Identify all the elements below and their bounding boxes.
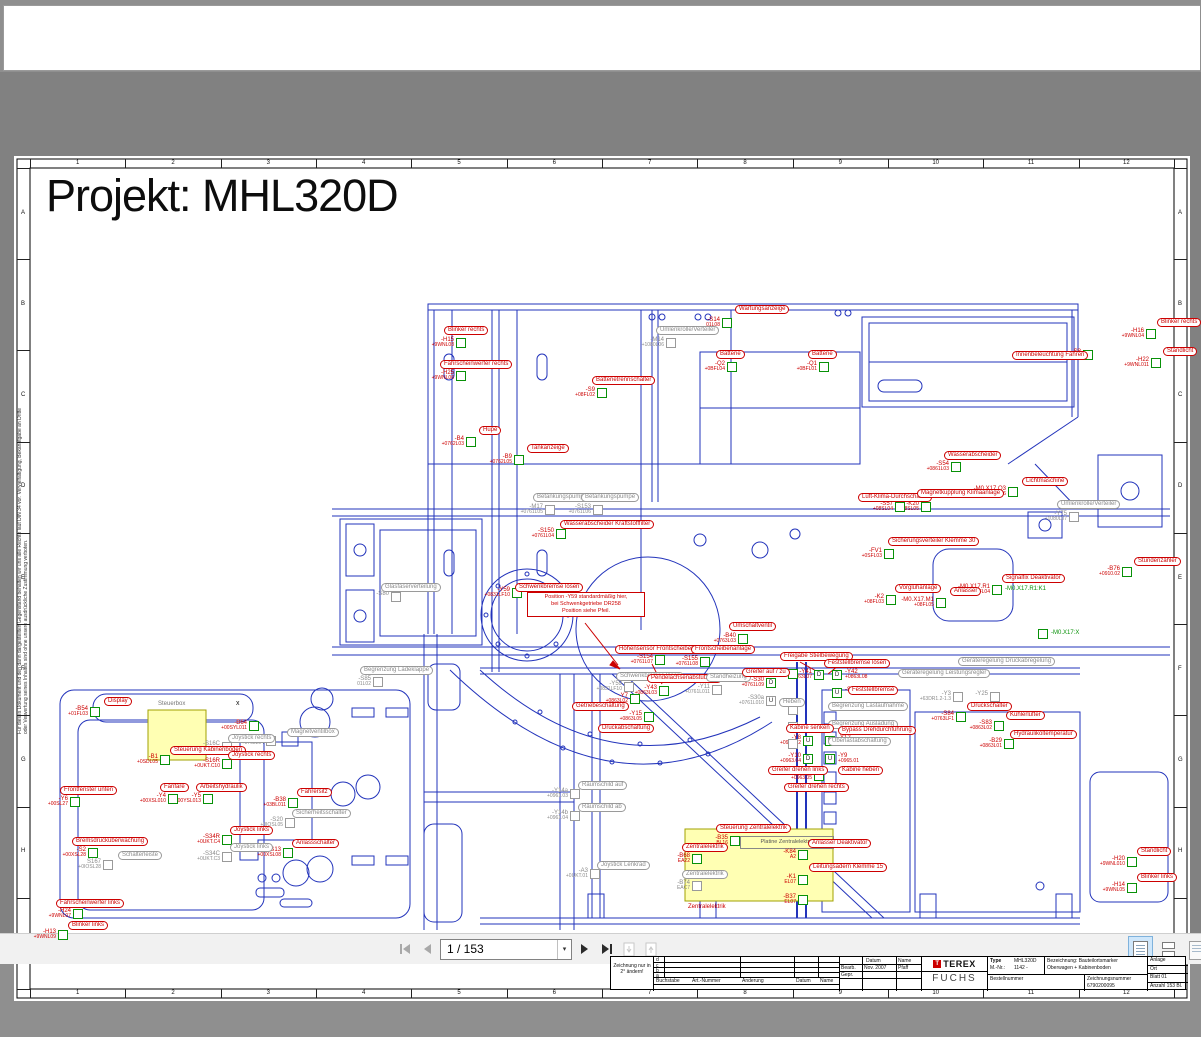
component-marker-square [1127, 883, 1137, 893]
component-label: Räumschild ab [578, 803, 626, 812]
component-tag: -H14+9WNL05 [1067, 882, 1125, 893]
component-label: Arbeitshydraulik [196, 783, 247, 792]
frame-col-label: 8 [743, 160, 746, 166]
revision-table: d c b a Buchstabe Art.-Nummer Änderung D… [653, 957, 839, 991]
frame-col-label: 2 [171, 160, 174, 166]
component-label: Wasserabscheider [944, 451, 1001, 460]
component-label: Betankungspumpe [581, 493, 639, 502]
component-marker-square [1004, 739, 1014, 749]
component-tag: -S150+0761L04 [496, 528, 554, 539]
frame-col-label: 1 [76, 160, 79, 166]
signature-table: Datum Name Bearb. Nov. 2007 Pfaff Gepr. [839, 957, 921, 991]
frame-row-label: E [1178, 575, 1182, 581]
component-marker-square [168, 794, 178, 804]
component-marker-square [58, 930, 68, 940]
component-tag: -M14+1080L06 [606, 337, 664, 348]
component-marker-square: D [832, 670, 842, 680]
component-label: Begrenzung Lastaufnahme [828, 702, 908, 711]
component-marker-square [798, 850, 808, 860]
component-marker-square [727, 362, 737, 372]
component-tag: -B54+01FL03 [30, 706, 88, 717]
component-marker-square [70, 797, 80, 807]
component-label: Schalterleiste [118, 851, 162, 860]
frame-row-label: C [21, 392, 25, 398]
component-label: Sicherungsverteiler Klemme 30 [888, 537, 979, 546]
component-label: Umschaltventil [729, 622, 776, 631]
component-tag: -B64+00SYL011 [189, 720, 247, 731]
component-label: Fahrscheinwerfer rechts [440, 360, 512, 369]
component-marker-square [994, 721, 1004, 731]
combo-caret-icon[interactable]: ▾ [557, 940, 571, 959]
frame-row-label: D [21, 483, 25, 489]
component-marker-square [203, 794, 213, 804]
component-marker-square [895, 502, 905, 512]
frame-tick [1174, 898, 1187, 899]
frame-row-label: G [1178, 757, 1183, 763]
component-marker-square [373, 677, 383, 687]
component-label: Hupe [479, 426, 501, 435]
component-marker-square [391, 592, 401, 602]
component-label: Feststellbremse lösen [824, 659, 890, 668]
title-block: Zeichnung nur in 2° ändern! d c b a Buch… [610, 956, 1186, 990]
component-tag: -Y10+0963.04 [743, 753, 801, 764]
component-tag: -K1EL07 [738, 874, 796, 885]
component-label: Wartungsanzeige [735, 305, 789, 314]
frame-tick [17, 898, 30, 899]
copyright-side-note: Für dieses Dokument und den darin darges… [17, 402, 29, 734]
component-label: Wasserabscheider Kraftstofffilter [560, 520, 654, 529]
component-marker-square [738, 634, 748, 644]
component-tag: -Y59+0831LF10 [452, 587, 510, 598]
component-label: Umlenkrolle/Verteiler [656, 326, 719, 335]
component-tag: -FV1+0SFL03 [824, 548, 882, 559]
component-marker-square: D [814, 670, 824, 680]
component-tag: -S8501L02 [313, 676, 371, 687]
component-label: Magnetventilbox [287, 728, 339, 737]
component-tag: -Y42+0863L08 [845, 669, 903, 680]
frame-tick [17, 168, 30, 169]
component-label: Glasfaserverteilung [381, 583, 441, 592]
component-marker-square [1008, 487, 1018, 497]
component-marker-square [1038, 629, 1048, 639]
component-tag: -S30a+0761L010 [706, 695, 764, 706]
component-label: Druckschalter [967, 702, 1012, 711]
component-marker-square [593, 505, 603, 515]
component-marker-square [659, 686, 669, 696]
component-marker-square [285, 818, 295, 828]
frame-col-label: 7 [648, 160, 651, 166]
component-label: Kabine heben [838, 766, 883, 775]
position-note-box: Position -Y59 standardmäßig hier, bei Sc… [527, 592, 645, 617]
component-marker-square [466, 437, 476, 447]
frame-tick [602, 159, 603, 168]
component-label: Geräteregelung Leistungsregler [898, 669, 990, 678]
component-marker-square [90, 707, 100, 717]
frame-tick [411, 989, 412, 998]
drawing-info: Type MHL320D M.-Nr.: 1142 - Bezeichnung:… [987, 957, 1147, 991]
component-marker-square [570, 811, 580, 821]
component-marker-square [692, 881, 702, 891]
component-tag: -Y9+0965.01 [838, 753, 896, 764]
component-marker-square [1069, 512, 1079, 522]
component-label: Bypass Drehdurchführung [838, 726, 916, 735]
frame-row-label: B [21, 301, 25, 307]
component-label: Druckabschaltung [598, 724, 654, 733]
frame-col-label: 10 [932, 160, 939, 166]
component-marker-square [819, 362, 829, 372]
frame-tick [1174, 715, 1187, 716]
component-marker-square [456, 371, 466, 381]
component-label: Bremsdrucküberwachung [72, 837, 148, 846]
frame-tick [602, 989, 603, 998]
frame-tick [125, 159, 126, 168]
drawing-title: Projekt: MHL320D [46, 170, 398, 222]
component-label: Blinker links [1137, 873, 1177, 882]
component-tag: -B38+03BL011 [228, 797, 286, 808]
frame-tick [507, 989, 508, 998]
frame-row-label: G [21, 757, 26, 763]
component-tag: -Q1+0BFL01 [759, 361, 817, 372]
component-tag: -Y14a+0961.03 [510, 788, 568, 799]
component-tag: -H15+9WNL08 [396, 337, 454, 348]
component-label: Zentralelektrik [682, 843, 728, 852]
component-label: Anlasser [950, 587, 981, 596]
component-green-ref: -M0.X17:X [1051, 630, 1079, 636]
pdf-viewer-window: Projekt: MHL320D Für dieses Dokument und… [0, 0, 1201, 965]
component-marker-square [730, 836, 740, 846]
component-label: Magnetkupplung Klimaanlage [917, 489, 1004, 498]
frame-row-label: E [21, 575, 25, 581]
component-marker-square [956, 712, 966, 722]
component-label: Sicherheitsschalter [292, 809, 351, 818]
component-marker-square [73, 909, 83, 919]
frame-col-label: 6 [553, 160, 556, 166]
component-label: Standlicht [1163, 347, 1197, 356]
component-marker-square [624, 682, 634, 692]
component-tag: -K84A2 [738, 849, 796, 860]
steuerbox-caption: Steuerbox [158, 701, 185, 707]
x-mark: x [236, 700, 240, 707]
component-tag: -S2+00XSL28 [28, 847, 86, 858]
component-label: Frontscheibenanlage [691, 645, 755, 654]
component-label: Joystick Lenkrad [597, 861, 650, 870]
component-marker-square [921, 502, 931, 512]
frame-row-label: H [21, 848, 25, 854]
component-marker-square [884, 549, 894, 559]
component-tag: -B4+0762L03 [406, 436, 464, 447]
zentralelektrik-caption: Zentralelektrik [688, 904, 726, 910]
component-label: Joystick links [230, 843, 273, 852]
component-marker-square [590, 869, 600, 879]
component-tag: -M0.X17.M1+08FL05 [876, 597, 934, 608]
frame-tick [1174, 442, 1187, 443]
component-tag: -S9+08FL02 [537, 387, 595, 398]
frame-row-label: B [1178, 301, 1182, 307]
component-label: Schwenkbremse lösen [515, 583, 583, 592]
component-marker-square [953, 692, 963, 702]
frame-tick [30, 159, 31, 168]
frame-tick [125, 989, 126, 998]
component-label: Joystick links [230, 826, 273, 835]
frame-col-label: 9 [839, 160, 842, 166]
component-marker-square: U [803, 736, 813, 746]
component-label: Blinker rechts [444, 326, 488, 335]
component-tag: -S155+0761L08 [640, 656, 698, 667]
component-label: Vorglühanlage [895, 584, 941, 593]
component-marker-square [88, 848, 98, 858]
page-number-combo[interactable]: ▾ [440, 939, 572, 960]
component-tag: -Q2+0BFL04 [667, 361, 725, 372]
frame-tick [1174, 624, 1187, 625]
component-marker-square [456, 338, 466, 348]
component-label: Zentralelektrik [682, 870, 728, 879]
component-tag: -H13+9WNL09 [0, 929, 56, 940]
component-label: Signalfix Deaktivator [1002, 574, 1065, 583]
component-tag: -B76+0910.02 [1062, 566, 1120, 577]
frame-col-label: 12 [1123, 160, 1130, 166]
component-tag: -H22+9WNL011 [1091, 357, 1149, 368]
frame-row-label: F [21, 666, 25, 672]
component-marker-square [249, 721, 259, 731]
component-marker-square [283, 848, 293, 858]
document-area[interactable]: Projekt: MHL320D Für dieses Dokument und… [0, 72, 1201, 933]
frame-row-label: D [1178, 483, 1182, 489]
component-label: Batterie [808, 350, 837, 359]
component-label: Batterietrennschalter [592, 376, 655, 385]
component-marker-square [288, 798, 298, 808]
component-marker-square [1146, 329, 1156, 339]
component-label: Kabine senken [786, 724, 834, 733]
frame-tick [316, 989, 317, 998]
component-tag: -S34R+0UKT.C4 [162, 834, 220, 845]
frame-row-label: A [21, 210, 25, 216]
component-marker-square [951, 462, 961, 472]
terex-fuchs-logo: T TEREX FUCHS [921, 957, 987, 991]
frame-tick [1174, 533, 1187, 534]
frame-col-label: 6 [553, 990, 556, 996]
prev-page-button[interactable] [418, 939, 436, 959]
frame-tick [17, 533, 30, 534]
frame-tick [697, 159, 698, 168]
component-label: Lichtmaschine [1022, 477, 1068, 486]
frame-tick [507, 159, 508, 168]
frame-col-label: 3 [267, 990, 270, 996]
component-marker-square [666, 338, 676, 348]
frame-tick [1174, 159, 1175, 168]
frame-tick [17, 259, 30, 260]
component-tag: -S34C+0UKT.C3 [162, 851, 220, 862]
component-marker-square [798, 875, 808, 885]
component-tag: -Y14b+0961.04 [510, 810, 568, 821]
first-page-button[interactable] [396, 939, 414, 959]
component-tag: -B9+0762L05 [454, 454, 512, 465]
frame-col-label: 1 [76, 990, 79, 996]
component-marker-square [788, 739, 798, 749]
component-label: Getriebeschaltung [572, 702, 629, 711]
component-label: Anlassschalter [292, 839, 339, 848]
component-label: Fanfare [160, 783, 189, 792]
frame-row-label: A [1178, 210, 1182, 216]
facing-pages-icon [1189, 941, 1201, 960]
component-tag: -B1+0SDL05 [100, 754, 158, 765]
component-marker-square [222, 759, 232, 769]
next-page-button[interactable] [576, 939, 594, 959]
component-label: Greifer drehen rechts [784, 783, 849, 792]
component-marker-square [222, 852, 232, 862]
component-tag: -B40+0763L03 [678, 633, 736, 644]
component-green-ref: -M0.X17.R1:K1 [1005, 586, 1046, 592]
component-marker-square [886, 595, 896, 605]
frame-col-label: 4 [362, 160, 365, 166]
component-label: Anlasser Deaktivator [808, 839, 871, 848]
frame-tick [17, 442, 30, 443]
component-label: Feststellbremse [848, 686, 898, 695]
component-marker-square [712, 685, 722, 695]
component-marker-square [644, 712, 654, 722]
component-tag: -H24+9WNL07 [13, 908, 71, 919]
component-label: Batterie [716, 350, 745, 359]
component-tag: -A3+0UKT.01 [530, 868, 588, 879]
component-label: Blinker rechts [1157, 318, 1201, 327]
component-label: Tankanzeige [527, 444, 569, 453]
component-label: Stundenzähler [1134, 557, 1181, 566]
component-tag: -H20+9WNL010 [1067, 856, 1125, 867]
component-tag: -Y75+1080L07 [1009, 511, 1067, 522]
component-label: Innenbeleuchtung Fahren [1012, 351, 1088, 360]
component-label: Blinker links [68, 921, 108, 930]
component-marker-square [655, 655, 665, 665]
component-label: Umlenkrolle/Verteiler [1057, 500, 1120, 509]
frame-row-label: C [1178, 392, 1182, 398]
component-tag: -Y15+0863L05 [584, 711, 642, 722]
component-tag: -S54+0861L03 [891, 461, 949, 472]
frame-tick [793, 159, 794, 168]
component-label: Fahrscheinwerfer links [56, 899, 124, 908]
component-marker-square: D [803, 754, 813, 764]
component-label: Kühlerlüfter [1006, 711, 1045, 720]
component-marker-square [992, 585, 1002, 595]
component-label: Räumschild auf [578, 781, 627, 790]
frame-tick [1174, 259, 1187, 260]
terex-logo-icon: T [933, 960, 941, 968]
component-marker-square [1151, 358, 1161, 368]
component-marker-square [514, 455, 524, 465]
frame-tick [316, 159, 317, 168]
component-marker-square [103, 860, 113, 870]
frame-tick [17, 350, 30, 351]
component-tag: -K20+08SL05 [861, 501, 919, 512]
component-label: Frontfenster unten [60, 786, 117, 795]
component-marker-square: D [766, 678, 776, 688]
frame-tick [17, 989, 30, 990]
frame-tick [1174, 807, 1187, 808]
component-marker-square [570, 789, 580, 799]
component-label: Leitungsadern Klemme 15 [809, 863, 887, 872]
frame-col-label: 5 [457, 160, 460, 166]
component-marker-square [1122, 567, 1132, 577]
frame-tick [30, 989, 31, 998]
component-label: Greifer auf / zu [742, 668, 790, 677]
component-label: Heben [779, 698, 805, 707]
component-tag: -B74EAC7 [632, 880, 690, 891]
component-label: Steuerung Zentralelektrik [716, 824, 791, 833]
frame-col-label: 2 [171, 990, 174, 996]
component-label: Joystick rechts [228, 734, 275, 743]
frame-tick [221, 159, 222, 168]
frame-tick [411, 159, 412, 168]
component-tag: -B37EL07 [738, 894, 796, 905]
component-label: Joystick rechts [228, 751, 275, 760]
component-tag: -S16R+0UKT.C10 [162, 758, 220, 769]
component-label: Geräteregelung Druckabregelung [958, 657, 1055, 666]
component-marker-square [597, 388, 607, 398]
frame-col-label: 11 [1028, 160, 1034, 166]
component-marker-square: U [825, 754, 835, 764]
change-note: Zeichnung nur in 2° ändern! [611, 957, 653, 991]
component-label: Greifer drehen links [768, 766, 828, 775]
component-tag: -H16+9WNL04 [1086, 328, 1144, 339]
page-number-input[interactable] [441, 941, 557, 957]
component-marker-square [700, 657, 710, 667]
frame-row-label: H [1178, 848, 1182, 854]
component-marker-square [545, 505, 555, 515]
component-label: Fahrersitz [297, 788, 332, 797]
frame-tick [1079, 159, 1080, 168]
component-label: Überlastabschaltung [828, 737, 891, 746]
component-tag: S167+0IOSL28 [43, 859, 101, 870]
frame-tick [17, 624, 30, 625]
component-marker-square [798, 895, 808, 905]
component-marker-square [1127, 857, 1137, 867]
frame-tick [221, 989, 222, 998]
frame-col-label: 3 [267, 160, 270, 166]
component-tag: -S80 [331, 591, 389, 597]
frame-tick [983, 159, 984, 168]
component-tag: -S153+0761L06 [533, 504, 591, 515]
component-marker-square [556, 529, 566, 539]
frame-tick [1174, 168, 1187, 169]
component-label: Standlicht [1137, 847, 1171, 856]
frame-col-label: 5 [457, 990, 460, 996]
component-marker-square: U [766, 696, 776, 706]
component-marker-square [936, 598, 946, 608]
sheet-info: Anlage Ort Blatt 01 Anzahl 153 Bl. [1147, 957, 1187, 991]
top-toolbar [3, 5, 1200, 71]
component-tag: -B29+0863L01 [944, 738, 1002, 749]
component-tag: -H25+9WNL06 [396, 370, 454, 381]
component-label: Display [104, 697, 132, 706]
component-label: Hydrauliköltemperatur [1010, 730, 1077, 739]
component-marker-square: U [832, 688, 842, 698]
component-marker-square [722, 318, 732, 328]
component-marker-square [160, 755, 170, 765]
component-marker-square [990, 692, 1000, 702]
component-label: Begrenzung Ladeklappe [360, 666, 433, 675]
frame-row-label: F [1178, 666, 1182, 672]
component-tag: -Y6+00SL27 [10, 796, 68, 807]
frame-tick [17, 715, 30, 716]
component-marker-square [692, 854, 702, 864]
component-marker-square [630, 694, 640, 704]
frame-tick [888, 159, 889, 168]
frame-col-label: 4 [362, 990, 365, 996]
